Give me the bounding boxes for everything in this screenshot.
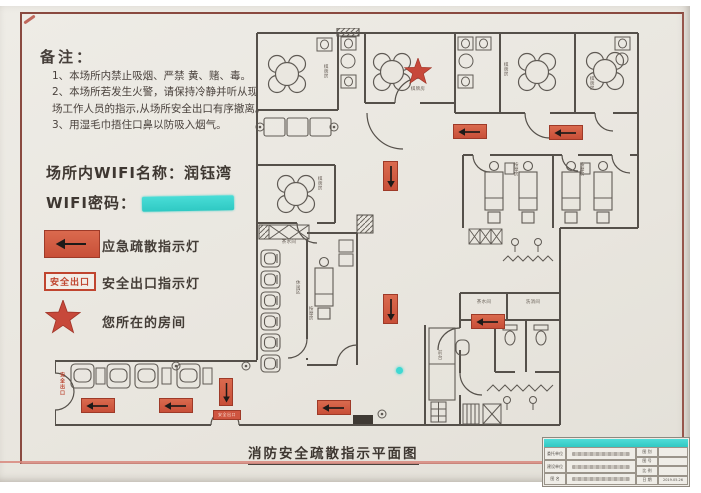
massage-bed-icon bbox=[315, 258, 333, 320]
shower-head-icon bbox=[512, 239, 519, 253]
room-label: 棋牌房 bbox=[589, 76, 594, 90]
floor-marker bbox=[242, 362, 250, 370]
toilet-icon bbox=[317, 38, 332, 51]
evacuation-arrow-sign bbox=[383, 294, 398, 324]
toilet-icon bbox=[534, 325, 548, 345]
evacuation-arrow-sign bbox=[453, 124, 487, 139]
room-label: 按摩房 bbox=[513, 162, 518, 176]
armchair-row bbox=[71, 364, 212, 388]
walls bbox=[55, 33, 638, 425]
toilet-icon bbox=[458, 75, 473, 88]
title-block-label: 日 期 bbox=[636, 476, 658, 486]
room-label: 前台 bbox=[437, 350, 442, 360]
evacuation-arrow-sign bbox=[159, 398, 193, 413]
room-label: 棋牌房 bbox=[503, 62, 508, 76]
massage-bed-icon bbox=[485, 162, 503, 224]
exit-sign: 安全出口 bbox=[59, 372, 66, 396]
storage-lockers bbox=[431, 402, 501, 424]
floor-plan: 安全出口 安全出口 棋牌房 棋牌房 棋牌房 棋牌房 棋牌房 按摩房 按摩房 按摩… bbox=[55, 28, 640, 432]
shower-curtain bbox=[487, 385, 553, 391]
shower-head-icon bbox=[535, 239, 542, 253]
floor-marker bbox=[172, 362, 180, 370]
massage-bed-icon bbox=[519, 162, 537, 224]
evacuation-arrow-sign bbox=[549, 125, 583, 140]
evacuation-arrow-sign bbox=[383, 161, 398, 191]
card-table-icon bbox=[278, 176, 315, 213]
title-block-value bbox=[566, 473, 636, 485]
title-block: 委托单位 建设单位 图 名 图 别 图 号 比 例 日 期 2019.05.26 bbox=[542, 437, 690, 487]
title-block-date: 2019.05.26 bbox=[658, 476, 688, 486]
room-label: 棋牌房 bbox=[399, 87, 437, 92]
recliner-row bbox=[261, 250, 280, 372]
cabinet bbox=[339, 254, 353, 266]
title-block-label: 建设单位 bbox=[544, 460, 566, 473]
star-icon bbox=[404, 58, 432, 86]
room-label: 按摩房 bbox=[579, 162, 584, 176]
desk-chair bbox=[456, 340, 469, 355]
locker-strip bbox=[469, 229, 502, 244]
toilet-icon bbox=[341, 37, 356, 50]
title-block-value bbox=[566, 447, 636, 460]
front-desk bbox=[429, 328, 469, 400]
shaft-hatch bbox=[357, 215, 373, 233]
title-block-label: 比 例 bbox=[636, 466, 658, 476]
title-block-label: 图 号 bbox=[636, 457, 658, 467]
card-table-icon bbox=[519, 54, 556, 91]
basin-icon bbox=[341, 54, 355, 68]
title-block-value bbox=[658, 466, 688, 476]
card-table-icon bbox=[269, 56, 306, 93]
toilet-icon bbox=[503, 325, 517, 345]
you-are-here-star bbox=[404, 58, 432, 90]
room-label: 棋牌房 bbox=[323, 64, 328, 78]
basin-icon bbox=[616, 53, 628, 65]
title-block-label: 委托单位 bbox=[544, 447, 566, 460]
title-block-header-redaction bbox=[544, 439, 688, 447]
cyan-dot-marker bbox=[396, 367, 403, 374]
basin-icon bbox=[459, 54, 473, 68]
title-block-label: 图 别 bbox=[636, 447, 658, 457]
shower-head-icon bbox=[504, 397, 511, 411]
title-block-value bbox=[566, 460, 636, 473]
toilet-icon bbox=[341, 75, 356, 88]
title-block-value bbox=[658, 457, 688, 467]
evacuation-arrow-sign bbox=[471, 314, 505, 329]
room-label: 按摩房 bbox=[308, 306, 313, 320]
evacuation-plan-photo: 备注： 1、本场所内禁止吸烟、严禁 黄、赌、毒。 2、本场所若发生火警，请保持冷… bbox=[0, 6, 690, 482]
floor-plan-drawing bbox=[55, 28, 640, 432]
room-label: 休闲区 bbox=[295, 280, 300, 294]
toilet-icon bbox=[458, 37, 473, 50]
title-block-value bbox=[658, 447, 688, 457]
entrance-mat bbox=[353, 415, 373, 424]
shelf-hatch bbox=[259, 225, 269, 239]
sofa-row bbox=[264, 118, 331, 136]
room-label: 洗消间 bbox=[509, 300, 557, 305]
massage-bed-icon bbox=[594, 162, 612, 224]
room-label: 茶水间 bbox=[271, 240, 307, 245]
room-label: 棋牌房 bbox=[317, 176, 322, 190]
toilet-icon bbox=[476, 37, 491, 50]
exit-sign: 安全出口 bbox=[213, 410, 241, 420]
cabinet bbox=[339, 240, 353, 252]
evacuation-arrow-sign bbox=[81, 398, 115, 413]
evacuation-arrow-sign bbox=[317, 400, 351, 415]
shower-head-icon bbox=[530, 397, 537, 411]
evacuation-arrow-sign bbox=[219, 378, 233, 406]
stair-hatch bbox=[337, 28, 359, 36]
title-block-label: 图 名 bbox=[544, 473, 566, 485]
room-label: 茶水间 bbox=[462, 300, 506, 305]
toilet-icon bbox=[615, 37, 630, 50]
shower-curtain bbox=[503, 256, 553, 261]
divider-line bbox=[0, 461, 562, 463]
floor-marker bbox=[378, 410, 386, 418]
